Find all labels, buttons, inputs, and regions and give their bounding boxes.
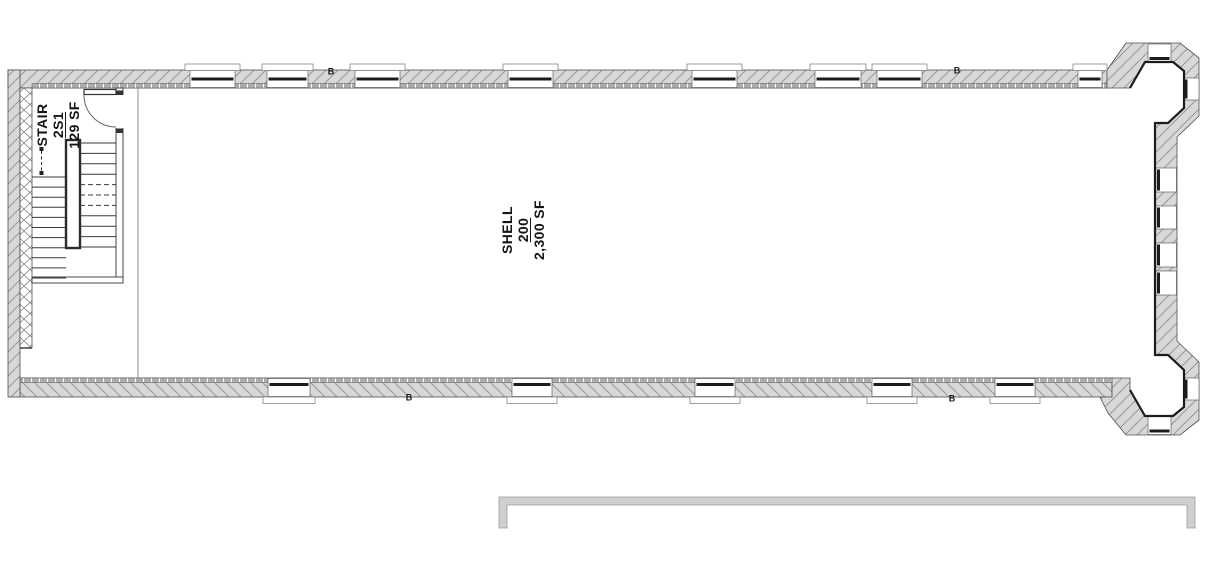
window (263, 379, 315, 404)
window (687, 64, 742, 88)
window (185, 64, 240, 88)
window-glazing (697, 383, 734, 386)
window-glazing (514, 383, 551, 386)
floor-plan-sheet: STAIR 2S1 129 SF SHELL 200 2,300 SF B B … (0, 0, 1211, 569)
room-label-shell: SHELL 200 2,300 SF (497, 175, 549, 285)
window-sill (185, 64, 240, 71)
keynote-marker: B (954, 67, 961, 76)
window (1156, 271, 1177, 295)
left-wall (8, 70, 20, 397)
window-glazing (879, 78, 921, 81)
stair-room-number: 2S1 (50, 112, 66, 138)
shell-room-area: 2,300 SF (531, 200, 547, 260)
door-leaf (84, 90, 116, 95)
window-sill (690, 397, 740, 404)
window-glazing (1080, 78, 1101, 81)
window-sill (687, 64, 742, 71)
adjacent-wall-outline (499, 497, 1195, 528)
window-sill (350, 64, 405, 71)
adjacent-building-outline (499, 497, 1195, 528)
window (350, 64, 405, 88)
door-opening (115, 95, 125, 128)
window-sill (1073, 64, 1107, 71)
window (1148, 417, 1171, 435)
window-glazing (270, 383, 309, 386)
window-sill (810, 64, 866, 71)
shell-room-name: SHELL (499, 206, 515, 254)
window-glazing (817, 78, 860, 81)
window (1073, 64, 1107, 88)
window-openings (185, 64, 1107, 404)
window (810, 64, 866, 88)
window (872, 64, 927, 88)
window-glazing (1157, 273, 1160, 294)
left-wall-furring (20, 88, 32, 348)
window-sill (263, 397, 315, 404)
door-swing-arc (84, 95, 116, 127)
window (1156, 168, 1177, 192)
window-glazing (357, 78, 399, 81)
keynote-marker: B (406, 394, 413, 403)
window-glazing (1157, 208, 1160, 228)
exterior-walls (8, 43, 1199, 435)
window-sill (867, 397, 917, 404)
floor-plan-linework (0, 0, 1211, 569)
window-glazing (1157, 170, 1160, 191)
window-sill (507, 397, 557, 404)
window-glazing (192, 78, 234, 81)
window (1148, 44, 1171, 62)
window (990, 379, 1040, 404)
window (262, 64, 313, 88)
stair-room-area: 129 SF (66, 101, 82, 149)
window-glazing (510, 78, 552, 81)
window-sill (990, 397, 1040, 404)
window (507, 379, 557, 404)
window (867, 379, 917, 404)
room-label-stair: STAIR 2S1 129 SF (33, 75, 83, 175)
window-sill (872, 64, 927, 71)
window-glazing (1157, 245, 1160, 266)
window (1185, 378, 1200, 400)
window (1156, 243, 1177, 267)
window-glazing (694, 78, 736, 81)
window-glazing (997, 383, 1034, 386)
window (690, 379, 740, 404)
window-sill (503, 64, 558, 71)
window-glazing (269, 78, 307, 81)
window (503, 64, 558, 88)
keynote-marker: B (328, 68, 335, 77)
window (1156, 206, 1177, 229)
window-sill (262, 64, 313, 71)
stair-room-name: STAIR (34, 104, 50, 147)
window (1185, 78, 1200, 100)
shell-room-number: 200 (515, 218, 531, 243)
window-glazing (874, 383, 911, 386)
keynote-marker: B (949, 395, 956, 404)
